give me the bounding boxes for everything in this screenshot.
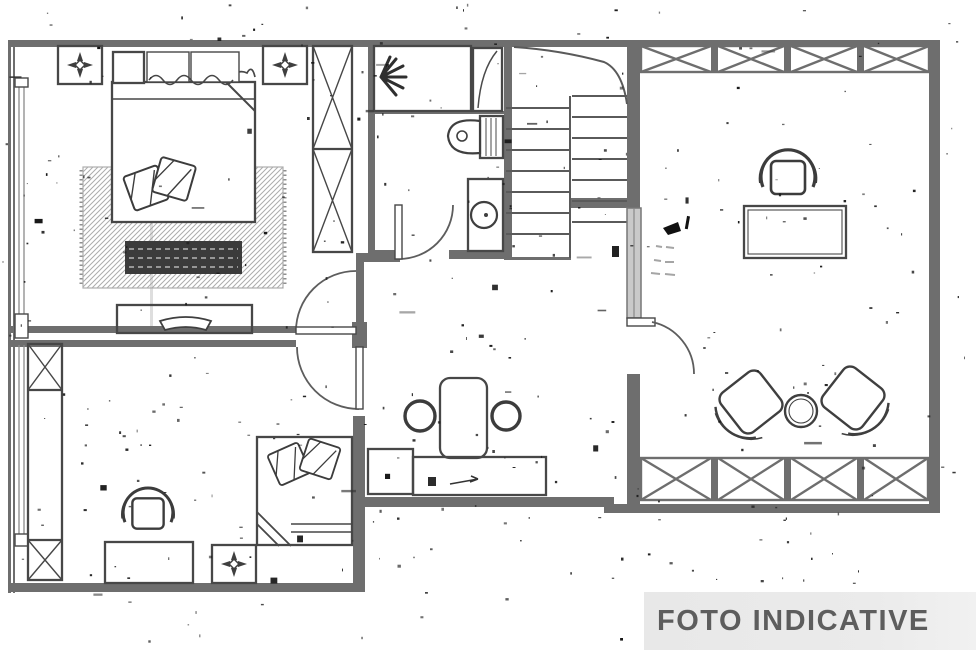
banner-label: FOTO INDICATIVE bbox=[657, 605, 930, 638]
office-chair bbox=[122, 488, 174, 529]
office-chair bbox=[760, 150, 817, 194]
shower-panel bbox=[473, 48, 502, 111]
kitchen-counter bbox=[368, 449, 546, 495]
second-bedroom-door bbox=[297, 347, 363, 409]
toilet bbox=[448, 116, 503, 158]
railing-bottom bbox=[641, 458, 928, 500]
shower-spray-icon bbox=[381, 57, 406, 95]
window bbox=[15, 78, 28, 546]
floor-plan-scan: FOTO INDICATIVE bbox=[0, 0, 976, 650]
headboard-cushions bbox=[147, 52, 239, 85]
terrace bbox=[641, 46, 929, 500]
second-bedroom bbox=[28, 344, 352, 583]
master-bedroom bbox=[58, 46, 352, 333]
armchair bbox=[812, 363, 898, 449]
desk bbox=[105, 542, 193, 583]
stool bbox=[405, 401, 435, 431]
ceiling-vent-icon bbox=[212, 545, 256, 583]
staircase bbox=[506, 47, 627, 258]
floor-plan-drawing bbox=[0, 0, 976, 650]
storage-bench bbox=[125, 241, 242, 274]
railing-top bbox=[641, 46, 929, 72]
washbasin bbox=[468, 179, 503, 251]
ceiling-vent-icon bbox=[58, 46, 102, 84]
terrace-door bbox=[627, 318, 694, 374]
dining-table bbox=[440, 378, 487, 458]
stool bbox=[492, 402, 520, 430]
armchair bbox=[706, 367, 792, 453]
dimension-marks bbox=[651, 246, 675, 275]
bathroom bbox=[374, 46, 503, 259]
master-bedroom-door bbox=[296, 271, 356, 334]
coffee-table bbox=[785, 395, 817, 427]
nightstand bbox=[113, 52, 144, 83]
bathroom-door bbox=[395, 205, 453, 259]
ceiling-vent-icon bbox=[263, 46, 307, 84]
wardrobe-crossed bbox=[313, 46, 352, 252]
photo-indicative-banner: FOTO INDICATIVE bbox=[644, 592, 976, 650]
wardrobe-crossed bbox=[28, 344, 62, 580]
sliding-door bbox=[627, 208, 641, 318]
terrace-desk bbox=[744, 206, 846, 258]
